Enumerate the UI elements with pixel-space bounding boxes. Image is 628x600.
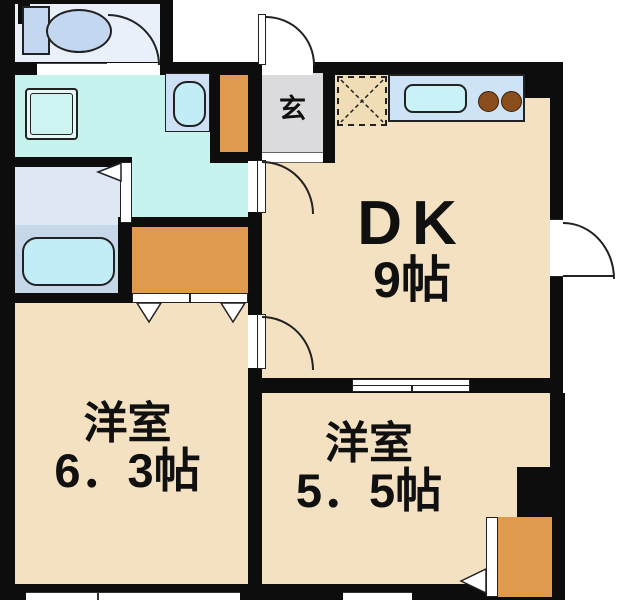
washing-machine-pan-inner bbox=[30, 93, 73, 135]
room-name: 洋室 bbox=[15, 402, 240, 447]
refrigerator-space bbox=[337, 76, 387, 126]
wall bbox=[525, 62, 563, 98]
wall bbox=[323, 73, 335, 163]
hall-closet bbox=[132, 227, 248, 293]
room-name: 洋室 bbox=[258, 422, 480, 467]
sliding-window bbox=[352, 379, 470, 392]
closet-door-divider bbox=[189, 294, 191, 302]
kitchen-sink bbox=[404, 84, 467, 113]
wall bbox=[210, 73, 220, 158]
vanity-sink bbox=[165, 73, 210, 132]
wall bbox=[118, 223, 132, 303]
wall bbox=[0, 0, 15, 600]
dk-name: DK bbox=[292, 192, 532, 255]
entrance-label: 玄 bbox=[262, 96, 323, 124]
western-room-large-label: 洋室 6．3帖 bbox=[15, 402, 240, 495]
wall bbox=[550, 98, 563, 219]
room-size: 5．5帖 bbox=[258, 467, 480, 515]
stove-burner-icon bbox=[501, 91, 522, 112]
wall bbox=[0, 157, 132, 167]
corner-closet-door bbox=[486, 517, 498, 597]
vanity-basin bbox=[173, 81, 206, 127]
wall bbox=[118, 217, 250, 227]
toilet-window bbox=[37, 63, 107, 75]
bathtub bbox=[22, 237, 115, 286]
window-mullion bbox=[97, 593, 99, 600]
dk-back-door-leaf bbox=[563, 275, 613, 277]
washing-machine-pan bbox=[25, 88, 78, 140]
wall bbox=[15, 0, 162, 4]
shoe-cabinet bbox=[220, 75, 248, 153]
toilet-bowl bbox=[46, 9, 112, 53]
bathroom-floor bbox=[15, 167, 121, 225]
western-room-small-label: 洋室 5．5帖 bbox=[258, 422, 480, 515]
sliding-window-tick bbox=[411, 385, 413, 391]
wall bbox=[550, 277, 563, 393]
dk-back-door-opening bbox=[550, 219, 563, 277]
washroom-floor-lower bbox=[132, 157, 250, 217]
corner-closet bbox=[498, 517, 552, 597]
bathroom-folding-door bbox=[120, 162, 132, 223]
entrance-door-arc bbox=[266, 16, 315, 65]
floor-plan: 玄 bbox=[0, 0, 628, 600]
stove-burner-icon bbox=[478, 91, 499, 112]
dk-size: 9帖 bbox=[292, 255, 532, 306]
wall bbox=[15, 293, 132, 303]
closet-double-door bbox=[132, 293, 248, 303]
dk-label: DK 9帖 bbox=[292, 192, 532, 306]
wall bbox=[517, 467, 565, 517]
dk-back-door-arc bbox=[563, 222, 615, 279]
entrance-door bbox=[258, 14, 266, 65]
bottom-window bbox=[343, 592, 412, 600]
bottom-window bbox=[26, 592, 240, 600]
room-size: 6．3帖 bbox=[15, 447, 240, 495]
